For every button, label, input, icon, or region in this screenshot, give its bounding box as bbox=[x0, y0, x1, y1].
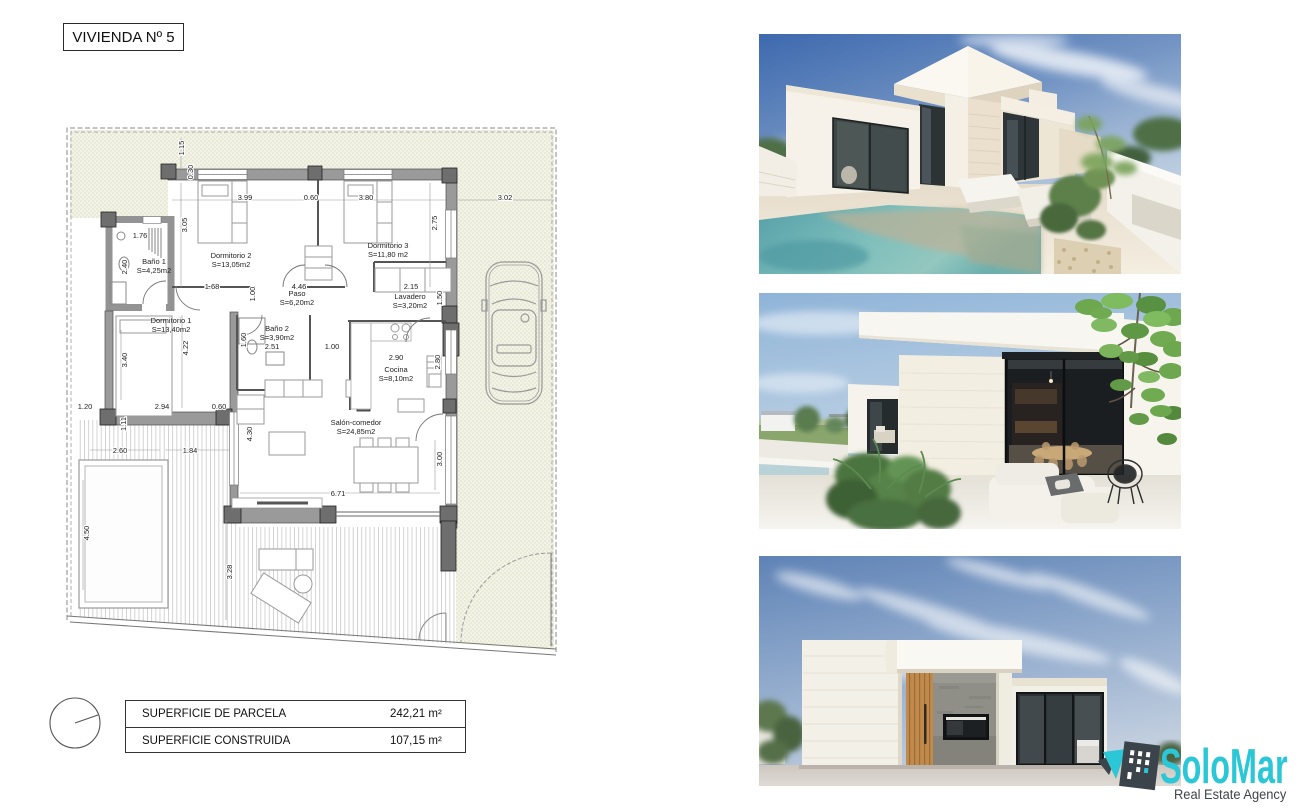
svg-text:S=6,20m2: S=6,20m2 bbox=[280, 298, 314, 307]
svg-text:2.80: 2.80 bbox=[433, 355, 442, 370]
svg-text:S=11,80 m2: S=11,80 m2 bbox=[368, 250, 408, 259]
svg-text:1.20: 1.20 bbox=[78, 402, 93, 411]
svg-text:2.90: 2.90 bbox=[389, 353, 404, 362]
svg-text:S=8,10m2: S=8,10m2 bbox=[379, 374, 413, 383]
svg-text:2.15: 2.15 bbox=[404, 282, 419, 291]
svg-text:1.76: 1.76 bbox=[133, 231, 148, 240]
svg-text:S=3,90m2: S=3,90m2 bbox=[260, 333, 294, 342]
svg-text:SoloMar: SoloMar bbox=[1160, 738, 1288, 793]
svg-text:3.02: 3.02 bbox=[498, 193, 513, 202]
svg-text:4.30: 4.30 bbox=[245, 427, 254, 442]
svg-text:Dormitorio 1: Dormitorio 1 bbox=[151, 316, 192, 325]
svg-text:3.80: 3.80 bbox=[359, 193, 374, 202]
svg-text:0.60: 0.60 bbox=[304, 193, 319, 202]
svg-text:S=3,20m2: S=3,20m2 bbox=[393, 301, 427, 310]
svg-text:Dormitorio 2: Dormitorio 2 bbox=[211, 251, 252, 260]
svg-text:1.60: 1.60 bbox=[239, 333, 248, 348]
svg-text:6.71: 6.71 bbox=[331, 489, 346, 498]
svg-text:1.11: 1.11 bbox=[119, 417, 128, 431]
svg-text:2.51: 2.51 bbox=[265, 342, 280, 351]
svg-text:3.40: 3.40 bbox=[120, 353, 129, 368]
svg-text:1.00: 1.00 bbox=[248, 287, 257, 302]
svg-text:Dormitorio 3: Dormitorio 3 bbox=[368, 241, 409, 250]
svg-text:4.22: 4.22 bbox=[181, 341, 190, 356]
svg-text:0.30: 0.30 bbox=[186, 165, 195, 180]
svg-text:Cocina: Cocina bbox=[384, 365, 408, 374]
svg-text:4.50: 4.50 bbox=[82, 526, 91, 541]
svg-text:S=13,05m2: S=13,05m2 bbox=[212, 260, 251, 269]
svg-text:2.75: 2.75 bbox=[430, 216, 439, 231]
svg-text:3.05: 3.05 bbox=[180, 218, 189, 233]
svg-text:2.60: 2.60 bbox=[113, 446, 128, 455]
svg-text:1.68: 1.68 bbox=[205, 282, 220, 291]
svg-text:3.28: 3.28 bbox=[225, 565, 234, 580]
svg-text:0.60: 0.60 bbox=[212, 402, 227, 411]
svg-text:S=24,85m2: S=24,85m2 bbox=[337, 427, 376, 436]
svg-text:3.00: 3.00 bbox=[435, 452, 444, 467]
svg-text:3.99: 3.99 bbox=[238, 193, 253, 202]
svg-text:1.15: 1.15 bbox=[177, 141, 186, 156]
svg-text:2.40: 2.40 bbox=[120, 260, 129, 275]
svg-text:Baño 1: Baño 1 bbox=[142, 257, 166, 266]
svg-text:Real Estate Agency: Real Estate Agency bbox=[1174, 787, 1287, 803]
svg-text:2.94: 2.94 bbox=[155, 402, 170, 411]
svg-text:1.00: 1.00 bbox=[325, 342, 340, 351]
svg-text:1.50: 1.50 bbox=[435, 291, 444, 306]
svg-text:Lavadero: Lavadero bbox=[394, 292, 425, 301]
svg-text:Paso: Paso bbox=[288, 289, 305, 298]
svg-text:1.84: 1.84 bbox=[183, 446, 198, 455]
svg-text:Baño 2: Baño 2 bbox=[265, 324, 289, 333]
svg-text:S=4,25m2: S=4,25m2 bbox=[137, 266, 171, 275]
svg-text:S=13,40m2: S=13,40m2 bbox=[152, 325, 191, 334]
svg-text:Salón-comedor: Salón-comedor bbox=[331, 418, 382, 427]
